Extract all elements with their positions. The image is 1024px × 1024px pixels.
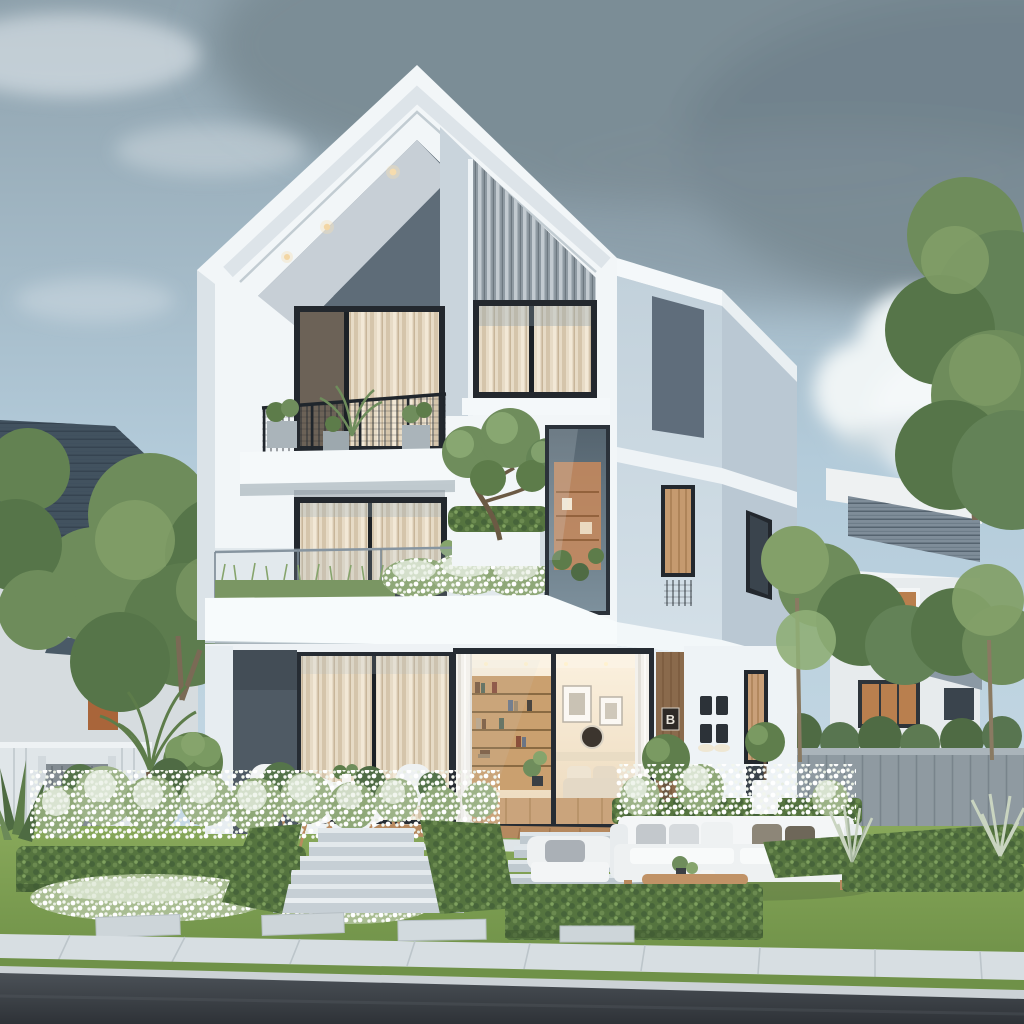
stair-step [273,898,464,913]
book-spine [522,737,526,747]
ceiling-downlight [564,662,568,666]
flower-highlight [683,765,709,791]
bonsai-highlight [486,412,518,444]
wing-vent [664,580,692,606]
step-tread [282,884,454,889]
canopy-blob [0,570,78,650]
topiary-highlight [646,738,670,762]
gable-left-side-face [197,270,215,640]
wing-accent-panel [652,296,704,438]
stair-step [309,842,424,856]
bonsai-foliage [470,460,506,496]
interior-plant [533,751,547,765]
book-spine [527,700,532,711]
ceiling-downlight [604,662,608,666]
downlight [284,254,290,260]
step-riser [300,861,434,870]
stepping-stone [96,915,181,938]
white-flower-puffs [616,764,856,820]
bonsai-highlight [446,430,474,458]
terrace-fascia-slab [205,595,617,650]
flower-highlight [188,776,216,804]
armchair-pillow [545,840,585,863]
groundcover-highlight [60,878,220,902]
house-number-plaque: B [662,708,679,730]
stair-step [318,828,414,842]
step-riser [282,889,454,898]
wing-window-1 [661,485,695,606]
stair-step [300,856,434,870]
scene-svg: B [0,0,1024,1024]
attic-white-band [462,398,610,415]
glass-sheen [301,656,449,674]
shelf-object [580,522,592,534]
book-spine [516,736,521,747]
canopy-blob [761,526,829,594]
sconce [716,724,728,743]
step-tread [300,856,434,861]
round-mirror [581,726,603,748]
stepping-stone [398,919,486,941]
canopy-highlight [95,500,175,580]
step-tread [309,842,424,847]
flower-highlight [625,777,647,799]
canopy-highlight [949,334,1021,406]
glass-reflection [479,306,591,326]
floating-cabinet [556,752,648,761]
sconce [716,696,728,715]
third-floor-balcony [240,386,455,499]
wisp [15,278,175,322]
art-sketch [569,693,585,715]
wisp [115,124,305,176]
sconce [700,696,712,715]
topiary-highlight [181,732,205,756]
canopy-blob [776,610,836,670]
stepping-stone [262,913,345,936]
planter-plant [416,402,432,418]
flower-highlight [336,783,362,809]
step-tread [318,828,414,833]
step-riser [273,903,464,913]
sconce-glow [714,744,730,752]
canopy-blob [952,564,1024,636]
table-top [642,874,748,885]
planter-box [402,425,430,449]
armchair-seat [531,862,609,882]
flower-highlight [133,779,163,809]
attic-right-window [473,300,597,398]
downlight [324,224,330,230]
stair-step [282,884,454,898]
flower-highlight [816,780,836,800]
step-riser [291,875,444,884]
canopy-blob [70,612,170,712]
table-plant [686,862,698,874]
glass-reflection [300,503,441,517]
dark-wall-top-shade [233,650,297,690]
flower-highlight [381,780,405,804]
plaque-letter: B [666,712,675,727]
plant-pot [532,776,543,786]
door-mullion [551,648,556,830]
planter-box [267,421,297,448]
bonsai-foliage [516,460,548,492]
fence-cap [0,742,152,748]
flower-highlight [84,770,116,802]
step-tread [273,898,464,903]
step-riser [309,847,424,856]
downlight [390,169,397,176]
interior-plant [571,563,589,581]
hedge-row-low [842,864,1024,892]
flower-highlight [288,774,316,802]
render-stage: B [0,0,1024,1024]
canopy-highlight [921,226,989,294]
column-highlight [468,159,473,416]
stepping-stone [560,926,634,942]
window-wood-curtain [665,489,691,573]
flower-highlight [392,560,436,580]
sconce-glow [698,744,714,752]
flower-highlight [42,788,70,816]
step-tread [291,870,444,875]
planter-plant [281,399,299,417]
outdoor-armchair [527,836,613,882]
stair-step [291,870,444,884]
planter-box [323,431,349,451]
sconce [700,724,712,743]
art-sketch [605,703,617,719]
interior-plant [588,548,604,564]
step-riser [318,833,414,842]
corner-glass-window [545,425,610,615]
flower-highlight [237,781,267,811]
topiary-highlight [748,725,768,745]
right-house-dark-door [944,688,974,720]
planter-plant [325,416,341,432]
